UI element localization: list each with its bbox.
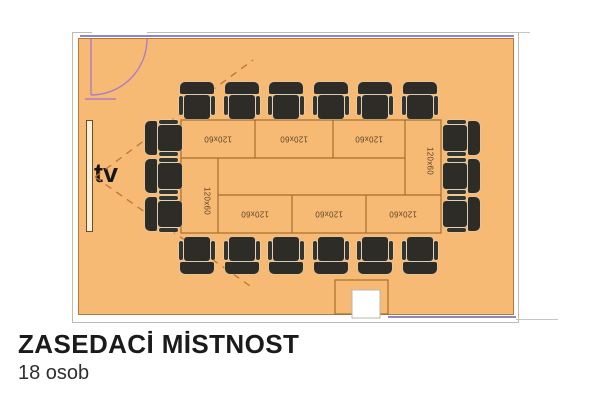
chair-right-1 bbox=[442, 120, 480, 156]
chair-bottom-6 bbox=[402, 236, 438, 274]
table-module-label-bottom-2: 120x60 bbox=[315, 210, 343, 219]
chair-left-2 bbox=[145, 158, 183, 194]
chair-bottom-4 bbox=[313, 236, 349, 274]
chair-bottom-1 bbox=[179, 236, 215, 274]
table-module-label-bottom-3: 120x60 bbox=[389, 210, 417, 219]
table-module-label-top-3: 120x60 bbox=[355, 135, 383, 144]
chair-bottom-3 bbox=[268, 236, 304, 274]
chair-left-1 bbox=[145, 120, 183, 156]
chair-top-2 bbox=[224, 82, 260, 120]
capacity-subtitle: 18 osob bbox=[18, 362, 299, 384]
chair-top-1 bbox=[179, 82, 215, 120]
table-module-label-bottom-1: 120x60 bbox=[241, 210, 269, 219]
table-module-label-end-left: 120x60 bbox=[203, 187, 212, 215]
chair-top-3 bbox=[268, 82, 304, 120]
table-module-label-top-1: 120x60 bbox=[204, 135, 232, 144]
table-module-label-top-2: 120x60 bbox=[280, 135, 308, 144]
chair-top-6 bbox=[402, 82, 438, 120]
table-module-label-end-right: 120x60 bbox=[426, 147, 435, 175]
floor-plan-page: tv 120x60120 bbox=[0, 0, 600, 400]
chair-bottom-5 bbox=[357, 236, 393, 274]
chair-top-4 bbox=[313, 82, 349, 120]
chair-left-3 bbox=[145, 196, 183, 232]
chair-right-3 bbox=[442, 196, 480, 232]
chair-right-2 bbox=[442, 158, 480, 194]
caption-block: ZASEDACİ MİSTNOST 18 osob bbox=[18, 330, 299, 384]
chair-top-5 bbox=[357, 82, 393, 120]
chair-bottom-2 bbox=[224, 236, 260, 274]
page-title: ZASEDACİ MİSTNOST bbox=[18, 330, 299, 359]
